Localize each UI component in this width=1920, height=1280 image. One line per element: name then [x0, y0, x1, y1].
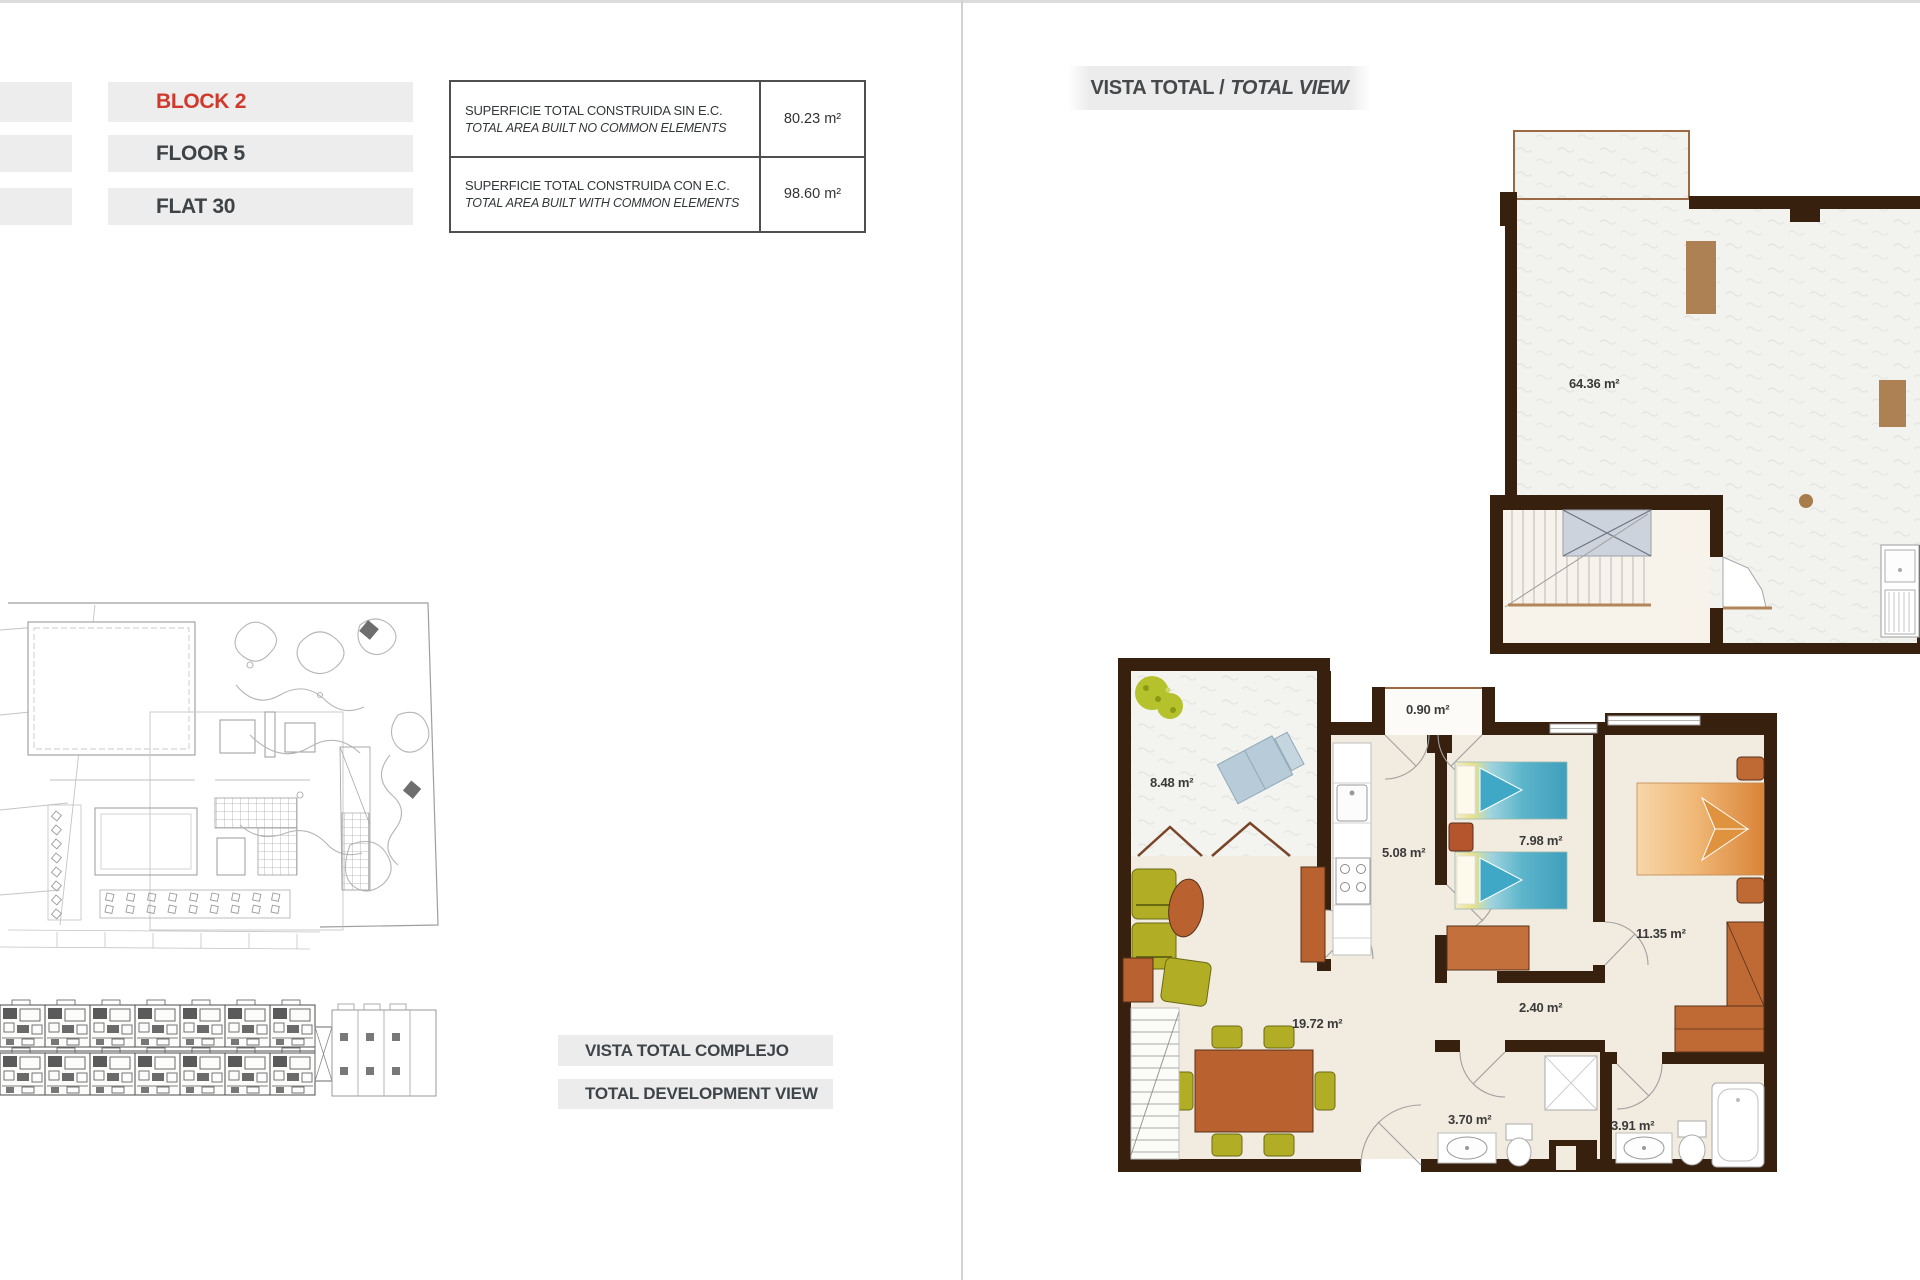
- toilet: [1507, 1138, 1531, 1166]
- site-units-light: [332, 1004, 436, 1096]
- site-apartment-row: [0, 1000, 332, 1095]
- area-no-common-value: 80.23 m²: [759, 82, 864, 156]
- edge-bar-1: [0, 82, 72, 122]
- label-bedroom1-area: 11.35 m²: [1636, 926, 1687, 941]
- table-row: SUPERFICIE TOTAL CONSTRUIDA CON E.C. TOT…: [451, 158, 864, 232]
- development-view-bar-es: VISTA TOTAL COMPLEJO: [558, 1035, 833, 1066]
- side-table: [1123, 958, 1153, 1002]
- floor-label-bar: FLOOR 5: [108, 135, 413, 172]
- block-label: BLOCK 2: [156, 90, 246, 114]
- edge-bar-3: [0, 188, 72, 225]
- page-divider: [961, 0, 963, 1280]
- label-terrace-area: 8.48 m²: [1150, 775, 1194, 790]
- development-view-bar-en: TOTAL DEVELOPMENT VIEW: [558, 1079, 833, 1109]
- label-closet-area: 0.90 m²: [1406, 702, 1450, 717]
- page-top-rule: [0, 0, 1920, 3]
- site-marker-2: [403, 781, 421, 799]
- kitchen-fixtures: [1333, 743, 1371, 955]
- wall-niche: [1556, 1146, 1576, 1170]
- main-floor-plan: 8.48 m² 0.90 m² 5.08 m² 7.98 m² 11.35 m²…: [1100, 650, 1790, 1180]
- built-area-table: SUPERFICIE TOTAL CONSTRUIDA SIN E.C. TOT…: [449, 80, 866, 233]
- development-view-en: TOTAL DEVELOPMENT VIEW: [585, 1084, 818, 1104]
- floor-label: FLOOR 5: [156, 142, 245, 166]
- edge-bar-2: [0, 135, 72, 172]
- kitchen-sink: [1337, 785, 1367, 821]
- interior-stairs: [1131, 1008, 1179, 1159]
- site-steps: [340, 747, 370, 890]
- area-with-common-label: SUPERFICIE TOTAL CONSTRUIDA CON E.C. TOT…: [451, 158, 759, 232]
- sideboard: [1301, 867, 1325, 962]
- toilet: [1679, 1135, 1705, 1165]
- total-view-en: TOTAL VIEW: [1230, 77, 1348, 100]
- dining-table: [1195, 1050, 1313, 1132]
- site-roads: [0, 930, 320, 949]
- flat-label-bar: FLAT 30: [108, 188, 413, 225]
- nightstand: [1737, 757, 1764, 780]
- entry-opening: [1361, 1159, 1421, 1172]
- area-no-common-es: SUPERFICIE TOTAL CONSTRUIDA SIN E.C.: [465, 103, 759, 118]
- solarium-open-terrace: [1514, 131, 1689, 199]
- area-with-common-en: TOTAL AREA BUILT WITH COMMON ELEMENTS: [465, 196, 759, 210]
- nightstand: [1737, 878, 1764, 903]
- site-bench-row: [100, 890, 290, 918]
- area-with-common-es: SUPERFICIE TOTAL CONSTRUIDA CON E.C.: [465, 178, 759, 193]
- label-hall-area: 2.40 m²: [1519, 1000, 1563, 1015]
- development-view-es: VISTA TOTAL COMPLEJO: [585, 1041, 789, 1061]
- armchair: [1160, 957, 1212, 1007]
- site-trellis: [215, 798, 297, 875]
- site-plan-sketch: [0, 595, 450, 1118]
- site-planter-strip: [48, 805, 81, 920]
- roof-furniture-1: [1686, 241, 1716, 314]
- nightstand: [1449, 823, 1473, 851]
- kitchen-stove: [1336, 858, 1370, 904]
- roof-sink-unit: [1881, 545, 1919, 637]
- area-with-common-value: 98.60 m²: [759, 158, 864, 232]
- dresser: [1447, 926, 1529, 970]
- label-bath1-area: 3.70 m²: [1448, 1112, 1492, 1127]
- roof-stool: [1799, 494, 1813, 508]
- site-pool: [28, 622, 195, 755]
- stairwell: [1503, 510, 1710, 643]
- label-solarium-area: 64.36 m²: [1569, 376, 1620, 391]
- brochure-page: BLOCK 2 FLOOR 5 FLAT 30 SUPERFICIE TOTAL…: [0, 0, 1920, 1280]
- upper-floor-plan: 64.36 m²: [1480, 100, 1920, 660]
- area-no-common-en: TOTAL AREA BUILT NO COMMON ELEMENTS: [465, 121, 759, 135]
- label-kitchen-area: 5.08 m²: [1382, 845, 1426, 860]
- flat-label: FLAT 30: [156, 195, 235, 219]
- label-bedroom2-area: 7.98 m²: [1519, 833, 1563, 848]
- table-row: SUPERFICIE TOTAL CONSTRUIDA SIN E.C. TOT…: [451, 82, 864, 158]
- block-label-bar: BLOCK 2: [108, 82, 413, 122]
- total-view-header: VISTA TOTAL / TOTAL VIEW: [1068, 66, 1371, 110]
- roof-furniture-2: [1879, 380, 1906, 427]
- label-living-area: 19.72 m²: [1292, 1016, 1343, 1031]
- total-view-es: VISTA TOTAL /: [1090, 77, 1224, 100]
- label-bath2-area: 3.91 m²: [1611, 1118, 1655, 1133]
- area-no-common-label: SUPERFICIE TOTAL CONSTRUIDA SIN E.C. TOT…: [451, 82, 759, 156]
